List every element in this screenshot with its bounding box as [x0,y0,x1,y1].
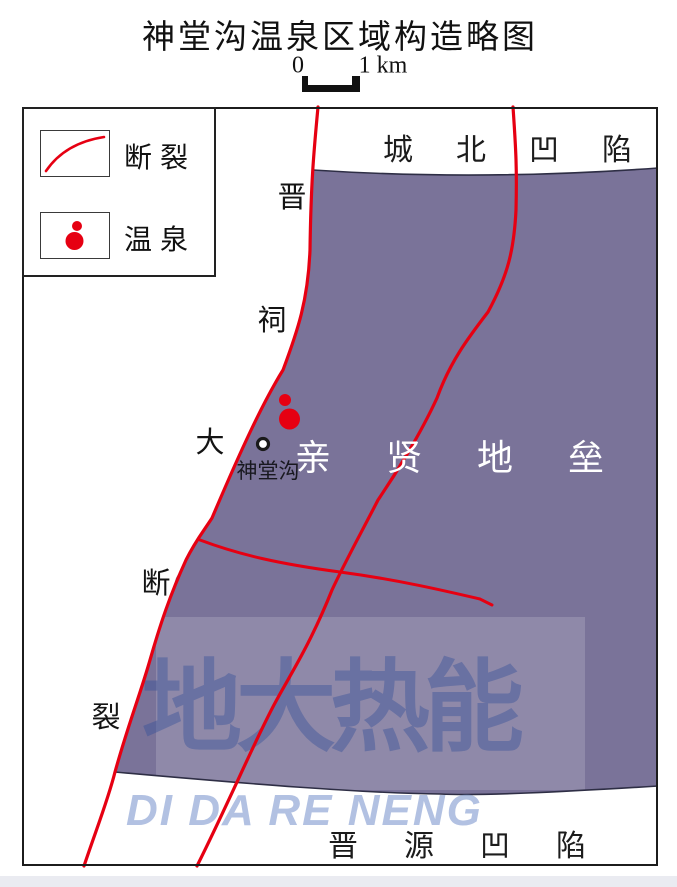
spring-point-label: 神堂沟 [237,455,300,485]
legend-fault-symbol-box [40,130,110,177]
fault-name-char-duan: 断 [141,560,170,602]
legend-spring-label: 温泉 [124,218,196,258]
fault-line-icon [41,131,108,175]
legend-box: 断裂 温泉 [22,107,216,277]
fault-name-char-jin: 晋 [277,174,306,216]
fault-name-char-da: 大 [195,419,224,461]
location-ring-marker [258,439,269,450]
watermark-cn-text: 地大热能 [142,652,522,764]
fault-name-char-ci: 祠 [257,297,286,339]
region-label-qinxian-horst: 亲贤地垒 [295,429,659,481]
fault-name-char-lie: 裂 [91,694,120,736]
legend-spring-symbol-box [40,212,110,259]
watermark-en-text: DI DA RE NENG [126,786,483,836]
hot-spring-icon [41,213,108,257]
legend-fault-label: 断裂 [124,136,196,176]
